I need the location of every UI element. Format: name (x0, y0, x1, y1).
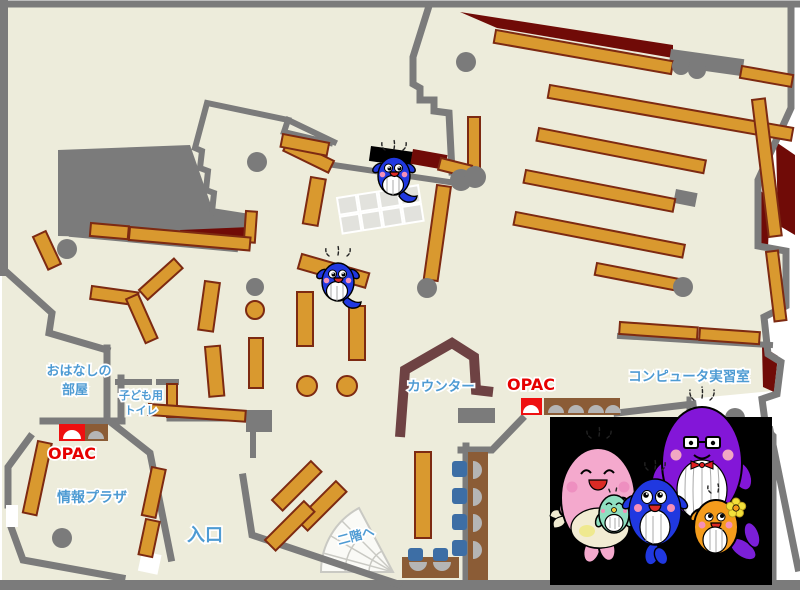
bookshelf (90, 223, 129, 239)
label-storytelling-room-line1: おはなしの (46, 364, 111, 379)
bookshelf (205, 346, 224, 397)
chair (452, 514, 467, 530)
pillar (57, 239, 77, 259)
floor-map-canvas: おはなしの 部屋 子ども用 トイレ OPAC 情報プラザ 入口 カウンター OP… (0, 0, 800, 590)
chair (452, 540, 467, 556)
library-floor-map: おはなしの 部屋 子ども用 トイレ OPAC 情報プラザ 入口 カウンター OP… (0, 0, 800, 590)
round-table (337, 376, 357, 396)
map-edge (794, 4, 800, 112)
study-table-cell (361, 211, 382, 231)
pillar (417, 278, 437, 298)
round-table (246, 301, 264, 319)
chair (433, 548, 448, 561)
pillar (247, 152, 267, 172)
label-opac-right: OPAC (507, 375, 555, 394)
pillar (246, 278, 264, 296)
study-table-cell (358, 192, 379, 212)
label-entrance: 入口 (187, 525, 223, 546)
pillar (52, 528, 72, 548)
label-kids-toilet-line1: 子ども用 (119, 389, 163, 402)
chair (408, 548, 423, 561)
door-gap (6, 505, 18, 527)
wall-block (246, 410, 272, 432)
label-info-plaza: 情報プラザ (57, 489, 127, 506)
round-table (297, 376, 317, 396)
label-kids-toilet-line2: トイレ (125, 404, 158, 417)
pillar (688, 61, 706, 79)
pillar (672, 57, 690, 75)
bookshelf (349, 306, 365, 360)
chair (452, 461, 467, 477)
study-table-cell (337, 195, 358, 215)
label-computer-room: コンピュータ実習室 (628, 368, 750, 385)
counter-return-desk (458, 408, 495, 423)
study-table-cell (340, 214, 361, 234)
label-opac-left: OPAC (48, 444, 96, 463)
pillar (456, 52, 476, 72)
study-table-cell (381, 207, 402, 227)
bookshelf (249, 338, 263, 388)
label-counter: カウンター (407, 379, 475, 395)
pillar (464, 166, 486, 188)
study-table-cell (402, 204, 423, 224)
label-storytelling-room-line2: 部屋 (62, 382, 88, 398)
pillar (673, 277, 693, 297)
bookshelf (297, 292, 313, 346)
bookshelf (415, 452, 431, 538)
chair (452, 488, 467, 504)
